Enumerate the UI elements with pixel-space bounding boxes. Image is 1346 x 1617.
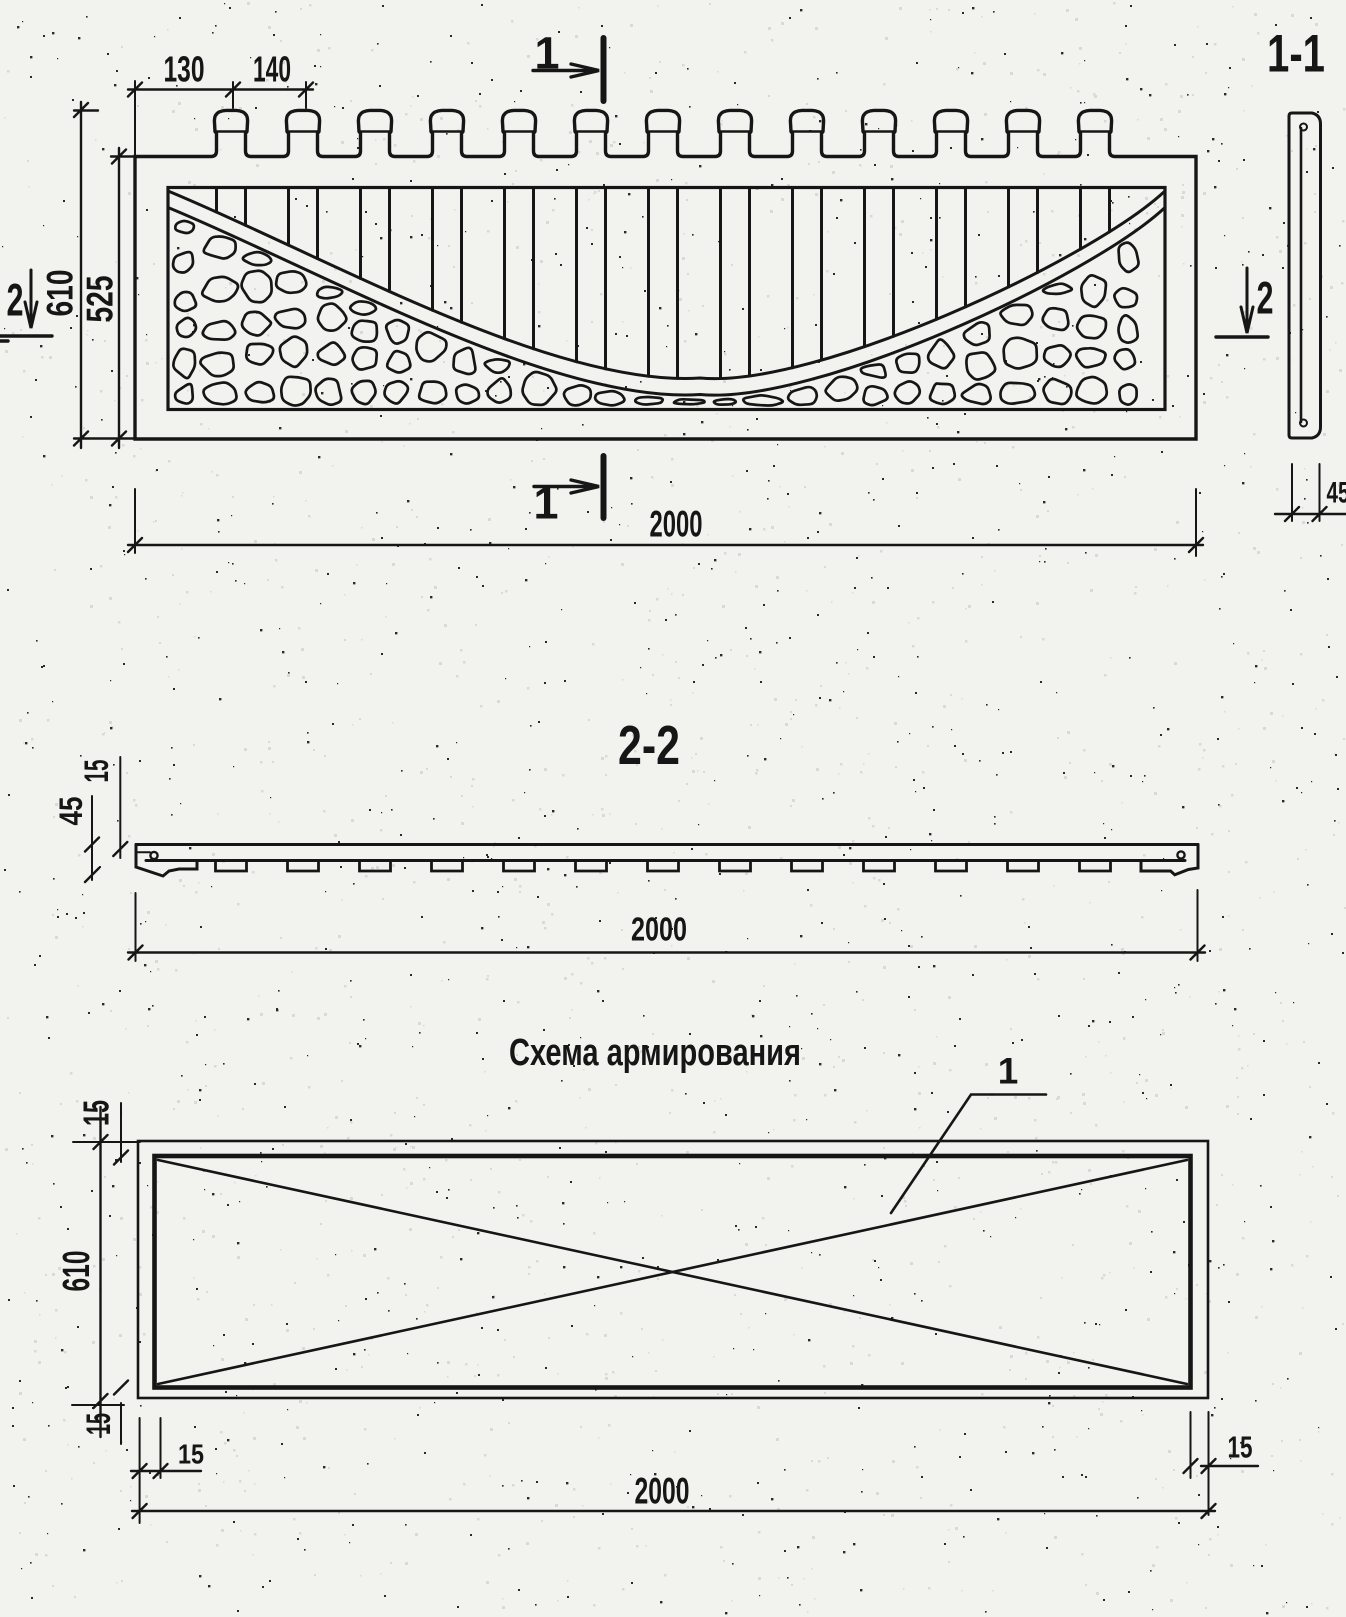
svg-text:130: 130 (164, 49, 205, 90)
svg-text:2000: 2000 (631, 911, 687, 948)
svg-text:1: 1 (998, 1051, 1019, 1092)
svg-text:610: 610 (40, 270, 81, 317)
svg-text:15: 15 (78, 760, 116, 783)
svg-text:15: 15 (178, 1439, 204, 1470)
svg-text:140: 140 (253, 49, 291, 90)
svg-text:15: 15 (80, 1413, 118, 1435)
svg-text:525: 525 (80, 276, 121, 323)
svg-text:1: 1 (533, 478, 558, 529)
svg-text:15: 15 (1228, 1430, 1253, 1465)
svg-text:15: 15 (76, 1100, 117, 1126)
svg-text:Схема армирования: Схема армирования (509, 1032, 801, 1074)
svg-text:2: 2 (1257, 273, 1274, 324)
svg-text:610: 610 (56, 1251, 98, 1292)
svg-text:2000: 2000 (650, 504, 703, 545)
svg-text:2-2: 2-2 (618, 714, 680, 776)
svg-text:2000: 2000 (635, 1471, 690, 1512)
svg-text:45: 45 (1327, 477, 1346, 510)
svg-text:2: 2 (7, 275, 24, 326)
svg-text:1-1: 1-1 (1267, 25, 1325, 84)
svg-text:45: 45 (53, 797, 89, 826)
svg-text:1: 1 (534, 28, 559, 79)
